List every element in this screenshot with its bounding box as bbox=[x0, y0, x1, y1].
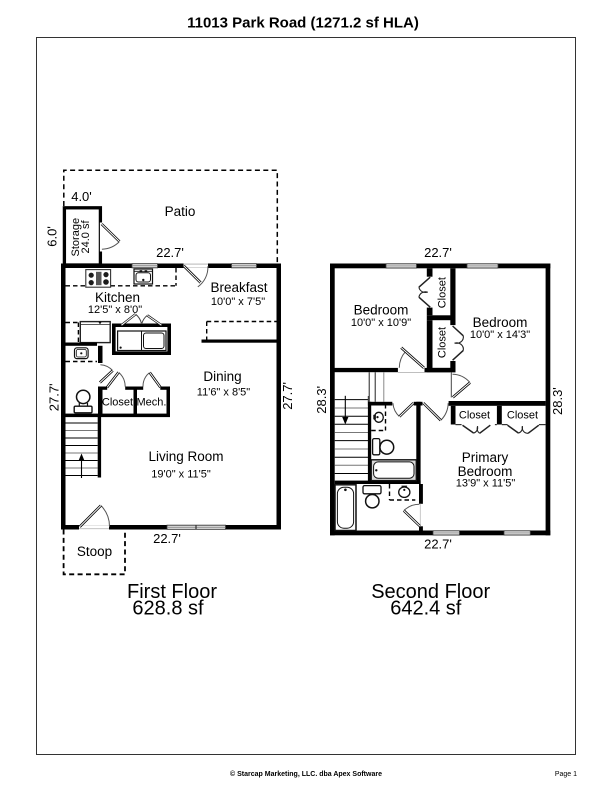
svg-text:6.0': 6.0' bbox=[45, 226, 60, 247]
svg-text:22.7': 22.7' bbox=[424, 537, 452, 552]
svg-text:11'6" x 8'5": 11'6" x 8'5" bbox=[197, 387, 250, 399]
svg-text:22.7': 22.7' bbox=[424, 245, 452, 260]
svg-text:Mech.: Mech. bbox=[137, 397, 167, 409]
svg-text:Closet: Closet bbox=[437, 277, 449, 308]
svg-text:© Starcap Marketing, LLC. dba: © Starcap Marketing, LLC. dba Apex Softw… bbox=[230, 770, 382, 778]
svg-text:Dining: Dining bbox=[203, 369, 241, 384]
svg-text:11013 Park Road (1271.2 sf HLA: 11013 Park Road (1271.2 sf HLA) bbox=[187, 15, 419, 32]
svg-text:10'0" x 7'5": 10'0" x 7'5" bbox=[211, 296, 265, 308]
svg-text:Stoop: Stoop bbox=[77, 544, 112, 559]
svg-text:Patio: Patio bbox=[165, 204, 196, 219]
svg-text:642.4 sf: 642.4 sf bbox=[390, 597, 462, 619]
svg-text:Breakfast: Breakfast bbox=[210, 280, 267, 295]
svg-text:628.8 sf: 628.8 sf bbox=[132, 597, 204, 619]
svg-text:Page 1: Page 1 bbox=[555, 771, 577, 778]
svg-text:Bedroom: Bedroom bbox=[473, 315, 528, 330]
svg-text:Closet: Closet bbox=[507, 410, 538, 422]
svg-text:Kitchen: Kitchen bbox=[95, 290, 140, 305]
svg-text:Closet: Closet bbox=[459, 410, 490, 422]
svg-text:24.0 sf: 24.0 sf bbox=[80, 220, 92, 254]
svg-text:Living Room: Living Room bbox=[148, 449, 223, 464]
svg-text:Closet: Closet bbox=[102, 397, 133, 409]
svg-text:27.7': 27.7' bbox=[280, 382, 295, 410]
svg-text:28.3': 28.3' bbox=[550, 387, 565, 415]
svg-text:19'0" x 11'5": 19'0" x 11'5" bbox=[151, 468, 211, 480]
svg-text:4.0': 4.0' bbox=[71, 189, 92, 204]
svg-text:10'0" x 14'3": 10'0" x 14'3" bbox=[470, 329, 530, 341]
svg-text:22.7': 22.7' bbox=[156, 245, 184, 260]
svg-text:10'0" x 10'9": 10'0" x 10'9" bbox=[351, 317, 411, 329]
svg-text:Bedroom: Bedroom bbox=[354, 303, 409, 318]
svg-text:27.7': 27.7' bbox=[46, 383, 61, 411]
svg-text:13'9" x 11'5": 13'9" x 11'5" bbox=[456, 478, 516, 490]
svg-text:28.3': 28.3' bbox=[314, 386, 329, 414]
svg-text:Primary: Primary bbox=[462, 450, 509, 465]
svg-text:22.7': 22.7' bbox=[153, 531, 181, 546]
svg-text:Closet: Closet bbox=[437, 327, 449, 358]
